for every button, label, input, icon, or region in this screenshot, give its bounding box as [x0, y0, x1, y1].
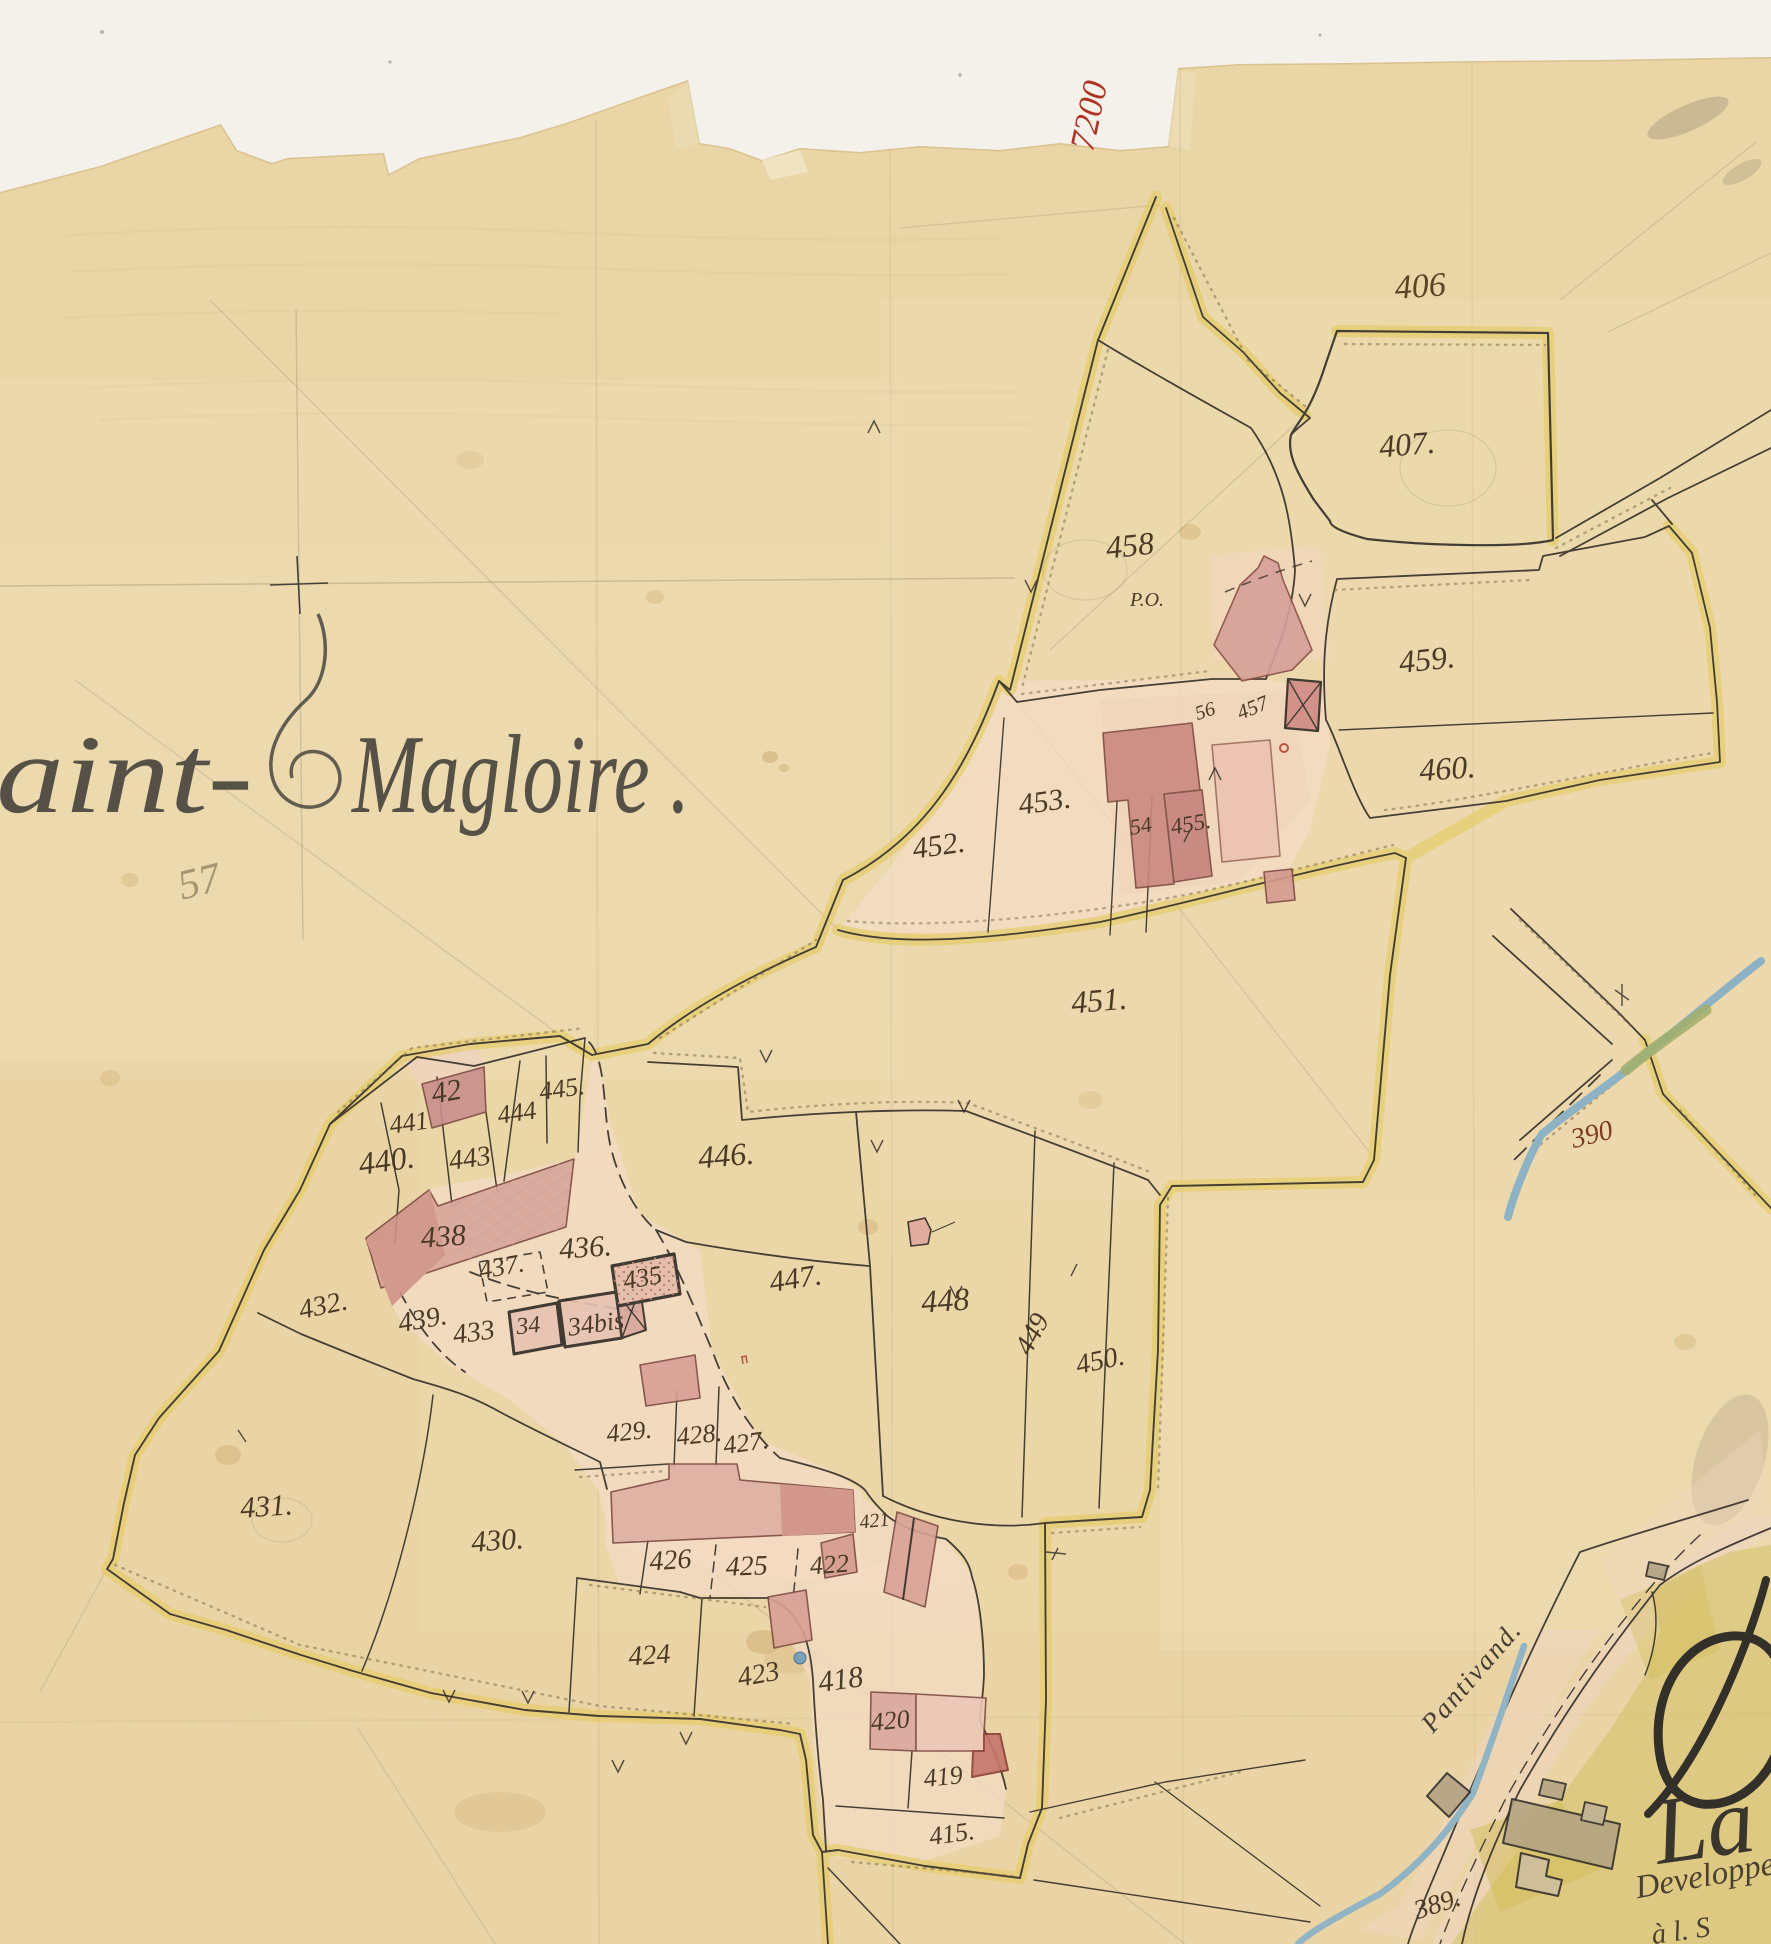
- svg-text:420: 420: [869, 1704, 911, 1737]
- svg-text:418: 418: [816, 1660, 865, 1699]
- svg-text:443: 443: [447, 1140, 493, 1177]
- svg-text:54: 54: [1128, 811, 1154, 839]
- svg-text:428.: 428.: [675, 1418, 723, 1452]
- svg-text:448: 448: [920, 1280, 970, 1319]
- svg-text:426: 426: [648, 1544, 692, 1578]
- svg-text:419: 419: [922, 1760, 964, 1793]
- svg-text:422: 422: [809, 1549, 850, 1581]
- svg-text:34: 34: [514, 1312, 542, 1340]
- svg-text:436.: 436.: [558, 1229, 613, 1266]
- svg-text:433: 433: [451, 1314, 497, 1351]
- svg-text:441: 441: [387, 1106, 430, 1140]
- svg-text:425: 425: [725, 1550, 768, 1582]
- svg-text:42: 42: [429, 1073, 464, 1111]
- svg-text:406: 406: [1394, 266, 1447, 306]
- svg-text:444: 444: [495, 1096, 538, 1130]
- svg-text:429.: 429.: [605, 1415, 653, 1449]
- svg-text:451.: 451.: [1070, 980, 1129, 1021]
- svg-text:460.: 460.: [1418, 748, 1476, 788]
- svg-text:431.: 431.: [239, 1488, 294, 1525]
- svg-text:430.: 430.: [470, 1522, 525, 1559]
- svg-text:P.O.: P.O.: [1129, 589, 1164, 611]
- svg-text:446.: 446.: [697, 1135, 756, 1176]
- svg-text:438: 438: [420, 1218, 467, 1254]
- svg-text:Magloire .: Magloire .: [351, 713, 690, 837]
- svg-text:458: 458: [1104, 525, 1156, 566]
- svg-text:424: 424: [627, 1639, 671, 1673]
- svg-text:421: 421: [858, 1509, 890, 1534]
- svg-text:Saint-: Saint-: [0, 713, 253, 837]
- svg-text:459.: 459.: [1397, 638, 1456, 680]
- svg-text:407.: 407.: [1378, 424, 1437, 465]
